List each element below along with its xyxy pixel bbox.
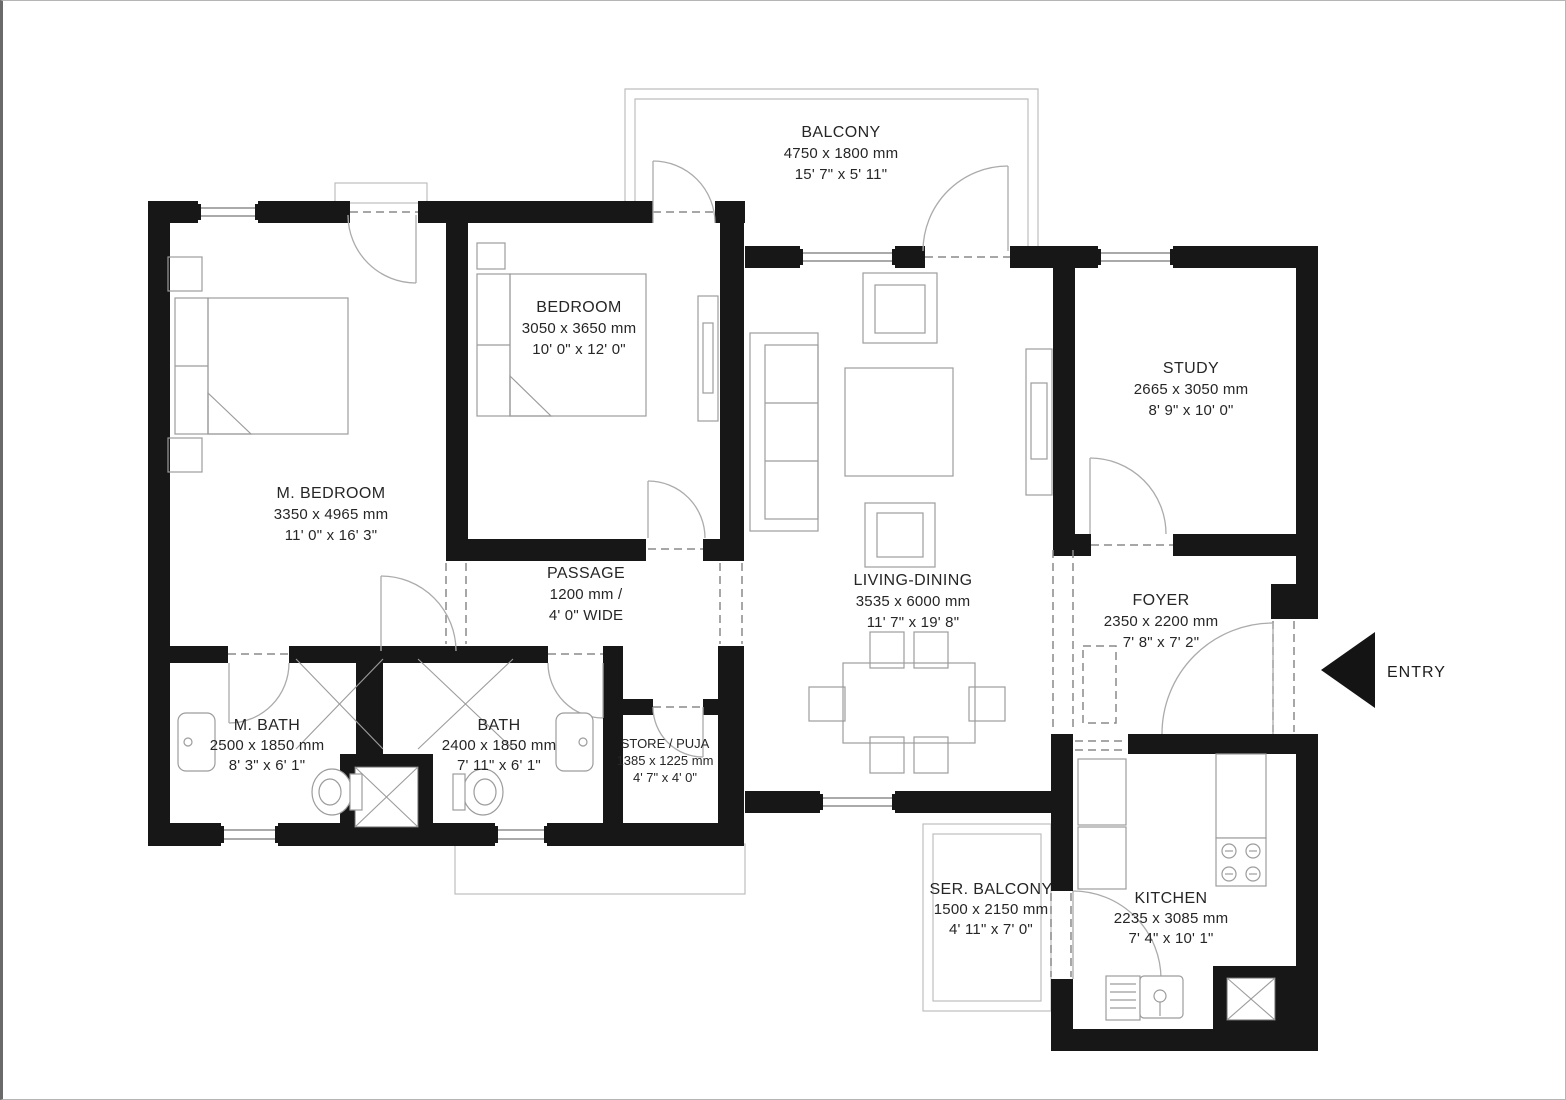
label-ser-balcony-ft: 4' 11" x 7' 0" [949, 921, 1033, 938]
door-mbedroom-top [348, 215, 416, 283]
label-balcony-mm: 4750 x 1800 mm [784, 145, 899, 162]
window [817, 791, 898, 813]
ledge-outline [455, 844, 745, 894]
label-balcony: BALCONY [801, 124, 880, 141]
entry-marker: ENTRY [1321, 632, 1446, 708]
label-bedroom: BEDROOM [536, 299, 621, 316]
label-m-bedroom-ft: 11' 0" x 16' 3" [285, 527, 378, 544]
light-outlines [335, 89, 1051, 1011]
label-kitchen-ft: 7' 4" x 10' 1" [1128, 930, 1213, 947]
label-kitchen: KITCHEN [1134, 890, 1207, 907]
furniture [168, 243, 1266, 1020]
armchair [863, 273, 937, 343]
label-living: LIVING-DINING [854, 572, 973, 589]
label-ser-balcony-mm: 1500 x 2150 mm [934, 901, 1049, 918]
window [195, 201, 261, 223]
label-foyer-ft: 7' 8" x 7' 2" [1123, 634, 1200, 651]
window [218, 823, 281, 846]
doors [229, 161, 1273, 979]
label-bedroom-mm: 3050 x 3650 mm [522, 320, 637, 337]
label-balcony-ft: 15' 7" x 5' 11" [795, 166, 888, 183]
label-ser-balcony: SER. BALCONY [929, 881, 1052, 898]
foyer-cabinet [1083, 646, 1116, 723]
window [1095, 246, 1176, 268]
door-bedroom-balcony [653, 161, 715, 223]
sink [1106, 976, 1183, 1020]
label-bath: BATH [477, 717, 520, 734]
label-m-bedroom: M. BEDROOM [277, 485, 386, 502]
label-kitchen-mm: 2235 x 3085 mm [1114, 910, 1229, 927]
stove [1216, 838, 1266, 886]
tv-unit [1026, 349, 1052, 495]
label-living-mm: 3535 x 6000 mm [856, 593, 971, 610]
sofa [750, 333, 818, 531]
label-living-ft: 11' 7" x 19' 8" [867, 614, 960, 631]
label-store-ft: 4' 7" x 4' 0" [633, 770, 697, 785]
door-mbedroom-passage [381, 576, 456, 651]
armchair [865, 503, 935, 567]
label-store-mm: 1385 x 1225 mm [617, 753, 714, 768]
dining-set [809, 632, 1005, 773]
label-m-bath: M. BATH [234, 717, 301, 734]
label-study-ft: 8' 9" x 10' 0" [1148, 402, 1233, 419]
label-bath-mm: 2400 x 1850 mm [442, 737, 557, 754]
window [797, 246, 898, 268]
door-mbath [229, 663, 289, 723]
entry-label: ENTRY [1387, 664, 1446, 681]
master-bed [168, 257, 348, 472]
door-bath [548, 663, 603, 718]
door-living-balcony [923, 166, 1008, 251]
floor-plan-svg: BALCONY 4750 x 1800 mm 15' 7" x 5' 11" B… [3, 1, 1566, 1100]
label-bedroom-ft: 10' 0" x 12' 0" [532, 341, 626, 358]
label-passage-ft: 4' 0" WIDE [549, 607, 623, 624]
floor-plan-page: BALCONY 4750 x 1800 mm 15' 7" x 5' 11" B… [0, 0, 1566, 1100]
label-bath-ft: 7' 11" x 6' 1" [457, 757, 541, 774]
label-foyer: FOYER [1132, 592, 1189, 609]
coffee-table [845, 368, 953, 476]
niche-outline [335, 183, 427, 203]
label-m-bath-mm: 2500 x 1850 mm [210, 737, 325, 754]
door-study [1090, 458, 1166, 534]
label-m-bedroom-mm: 3350 x 4965 mm [274, 506, 389, 523]
label-study-mm: 2665 x 3050 mm [1134, 381, 1249, 398]
entry-arrow-icon [1321, 632, 1375, 708]
label-m-bath-ft: 8' 3" x 6' 1" [229, 757, 306, 774]
window [492, 823, 550, 846]
label-passage-mm: 1200 mm / [550, 586, 623, 603]
label-foyer-mm: 2350 x 2200 mm [1104, 613, 1219, 630]
label-study: STUDY [1163, 360, 1219, 377]
door-bedroom-passage [648, 481, 705, 538]
label-passage: PASSAGE [547, 565, 625, 582]
label-store: STORE / PUJA [621, 736, 710, 751]
